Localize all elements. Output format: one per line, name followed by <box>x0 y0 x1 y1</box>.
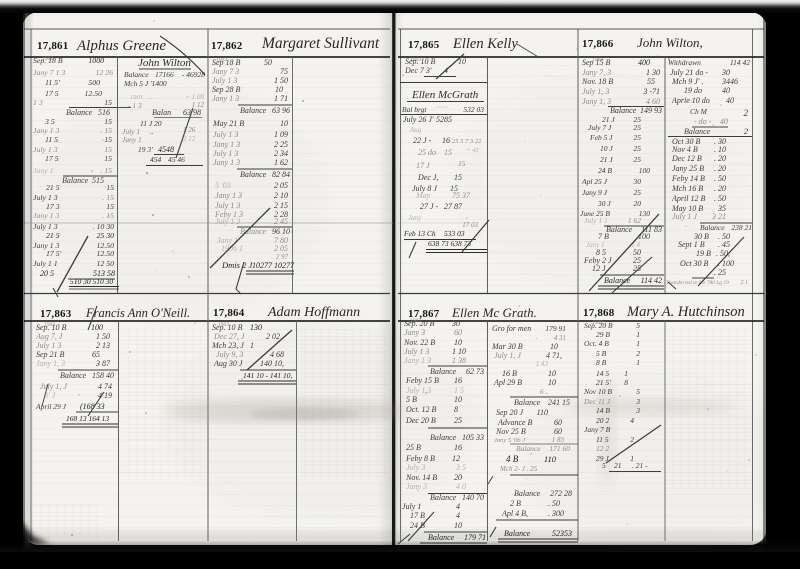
svg-text:Francis Ann O'Neill.: Francis Ann O'Neill. <box>85 306 190 320</box>
svg-text:Dec 12 B: Dec 12 B <box>671 154 702 163</box>
svg-text:3: 3 <box>635 397 640 406</box>
svg-text:12 J: 12 J <box>592 264 606 273</box>
svg-text:Balance: Balance <box>124 70 149 79</box>
svg-text:3446: 3446 <box>721 77 738 86</box>
svg-text:Balance: Balance <box>240 170 267 179</box>
svg-text:. 15: . 15 <box>100 166 112 175</box>
svg-text:20 5: 20 5 <box>40 269 54 278</box>
svg-text:17 5': 17 5' <box>46 249 62 258</box>
svg-text:110: 110 <box>544 454 557 464</box>
svg-text:17 5: 17 5 <box>45 89 59 98</box>
svg-text:25: 25 <box>634 155 642 164</box>
svg-text:. 20: . 20 <box>714 184 726 193</box>
svg-text:638 73 638 73: 638 73 638 73 <box>428 239 471 248</box>
svg-text:25: 25 <box>634 123 642 132</box>
svg-text:July 1 3: July 1 3 <box>213 130 238 139</box>
svg-text:Jany 1: Jany 1 <box>122 135 142 144</box>
svg-text:171 60: 171 60 <box>549 444 570 453</box>
svg-text:4 74: 4 74 <box>98 382 112 391</box>
svg-text:15: 15 <box>104 145 112 154</box>
svg-text:4 60: 4 60 <box>646 97 660 106</box>
svg-text:17,865: 17,865 <box>408 39 440 51</box>
svg-text:141 10 - 141 10,: 141 10 - 141 10, <box>243 371 292 380</box>
svg-text:10: 10 <box>548 378 556 387</box>
svg-text:Feb 13 Ch: Feb 13 Ch <box>403 229 436 238</box>
svg-text:2 02: 2 02 <box>266 332 280 341</box>
svg-text:Advance B: Advance B <box>497 418 533 427</box>
svg-text:7 B: 7 B <box>598 232 609 241</box>
svg-text:8: 8 <box>454 405 458 414</box>
svg-text:Balance: Balance <box>504 529 531 538</box>
svg-text:Jany 1 3: Jany 1 3 <box>404 356 431 365</box>
svg-text:Dec 27, J: Dec 27, J <box>213 332 245 341</box>
svg-text:1: 1 <box>636 358 640 367</box>
svg-text:17,862: 17,862 <box>211 40 243 52</box>
svg-text:Sep. 10 B: Sep. 10 B <box>36 323 67 332</box>
svg-text:114 42: 114 42 <box>730 58 750 67</box>
svg-text:1: 1 <box>636 330 640 339</box>
svg-text:30: 30 <box>451 319 460 328</box>
svg-text:20: 20 <box>454 473 462 482</box>
svg-text:40: 40 <box>726 96 734 105</box>
svg-text:. 300: . 300 <box>548 509 564 518</box>
svg-text:4 0: 4 0 <box>456 482 466 491</box>
svg-text:Jany 7 B: Jany 7 B <box>584 425 611 434</box>
svg-text:Dec 20 B: Dec 20 B <box>405 416 436 425</box>
svg-text:Jany 9 J: Jany 9 J <box>582 188 608 197</box>
svg-text:10: 10 <box>550 342 558 351</box>
svg-text:510 30 510 30: 510 30 510 30 <box>70 277 113 286</box>
svg-text:17,866: 17,866 <box>582 38 614 50</box>
svg-text:Dec 7 3': Dec 7 3' <box>404 66 432 75</box>
svg-text:Jany 1 3: Jany 1 3 <box>215 191 242 200</box>
svg-text:July 1 3: July 1 3 <box>36 341 61 350</box>
svg-text:July 7 J: July 7 J <box>588 123 612 132</box>
svg-text:30 J: 30 J <box>597 199 611 208</box>
svg-text:2 05: 2 05 <box>274 244 288 253</box>
svg-text:Jany 3: Jany 3 <box>404 328 425 337</box>
svg-text:130: 130 <box>250 323 262 332</box>
svg-text:July 1 3: July 1 3 <box>406 386 431 395</box>
svg-text:2 05: 2 05 <box>274 181 288 190</box>
svg-text:July 1, J: July 1, J <box>494 351 521 360</box>
svg-text:17 5: 17 5 <box>45 154 59 163</box>
svg-text:April 29 J: April 29 J <box>35 402 67 411</box>
svg-text:Feb 5 J: Feb 5 J <box>589 133 613 142</box>
svg-text:Ellen Kelly: Ellen Kelly <box>452 36 518 52</box>
svg-text:Sep. 10 B: Sep. 10 B <box>405 57 436 66</box>
svg-text:25 B: 25 B <box>406 443 421 452</box>
svg-text:Aprie 10 do: Aprie 10 do <box>671 96 710 105</box>
svg-text:533 03: 533 03 <box>444 229 465 238</box>
svg-text:4548: 4548 <box>158 145 174 154</box>
svg-text:.: . <box>536 333 538 341</box>
svg-text:16: 16 <box>442 136 450 145</box>
svg-text:John Wilton,: John Wilton, <box>637 35 703 50</box>
svg-text:Dec J,: Dec J, <box>417 173 438 182</box>
svg-text:500: 500 <box>88 78 100 87</box>
svg-text:5: 5 <box>636 321 640 330</box>
svg-text:Jany 5 '06 J: Jany 5 '06 J <box>494 437 526 444</box>
svg-text:25 do: 25 do <box>418 148 436 157</box>
svg-text:5285: 5285 <box>436 115 452 124</box>
svg-text:Nov. 14 B: Nov. 14 B <box>405 473 437 482</box>
svg-text:Jany 1 3: Jany 1 3 <box>33 211 60 220</box>
svg-text:Aug 7, J: Aug 7, J <box>35 332 63 341</box>
svg-text:5: 5 <box>602 461 606 470</box>
svg-text:May: May <box>415 191 431 200</box>
svg-text:Oct. 4 B: Oct. 4 B <box>584 339 609 348</box>
svg-text:3 5: 3 5 <box>455 463 466 472</box>
svg-text:Nov 25 B: Nov 25 B <box>495 427 526 436</box>
svg-text:Sep 18 B: Sep 18 B <box>212 58 241 67</box>
svg-text:Nov 4 B: Nov 4 B <box>671 145 698 154</box>
svg-text:24 B: 24 B <box>410 521 425 530</box>
svg-text:110: 110 <box>537 408 548 417</box>
svg-text:1 62: 1 62 <box>628 216 641 225</box>
svg-text:1 50: 1 50 <box>274 76 288 85</box>
svg-text:Dec 11 J: Dec 11 J <box>583 397 611 406</box>
svg-text:Sep. 20 B: Sep. 20 B <box>584 321 613 330</box>
svg-text:16: 16 <box>454 443 462 452</box>
svg-text:Oct. 12 B: Oct. 12 B <box>406 405 437 414</box>
svg-text:25: 25 <box>634 144 642 153</box>
svg-text:2: 2 <box>636 349 640 358</box>
svg-text:1: 1 <box>624 369 628 378</box>
svg-text:2 97: 2 97 <box>276 253 289 261</box>
svg-text:5: 5 <box>636 387 640 396</box>
svg-text:4: 4 <box>456 502 460 511</box>
svg-text:10 J: 10 J <box>600 144 613 153</box>
svg-text:Dmis 2 J: Dmis 2 J <box>221 260 253 270</box>
svg-text:8: 8 <box>624 378 628 387</box>
svg-text:25: 25 <box>454 416 462 425</box>
svg-text:21 J: 21 J <box>600 155 613 164</box>
svg-text:1: 1 <box>636 339 640 348</box>
svg-text:4 71,: 4 71, <box>546 351 562 360</box>
svg-text:60: 60 <box>554 418 562 427</box>
svg-text:- 1 3: - 1 3 <box>128 101 142 110</box>
svg-text:Balance: Balance <box>66 108 93 117</box>
svg-text:Balance: Balance <box>240 106 267 115</box>
svg-text:4 68: 4 68 <box>270 350 284 359</box>
svg-text:82 84: 82 84 <box>272 170 290 179</box>
svg-text:5 B: 5 B <box>596 349 607 358</box>
svg-text:4: 4 <box>630 416 634 425</box>
svg-text:17 J: 17 J <box>416 161 430 170</box>
svg-text:Sep 20 J: Sep 20 J <box>496 408 524 417</box>
svg-text:11 5': 11 5' <box>45 78 60 87</box>
svg-text:July 1 J: July 1 J <box>672 212 697 221</box>
svg-text:Jany 1 3: Jany 1 3 <box>213 158 240 167</box>
svg-text:Balance: Balance <box>700 223 725 232</box>
svg-text:3 87: 3 87 <box>95 359 111 368</box>
svg-text:21 5: 21 5 <box>46 231 60 240</box>
svg-text:2 25: 2 25 <box>274 140 288 149</box>
svg-text:July 1 3: July 1 3 <box>212 76 237 85</box>
svg-text:2 B: 2 B <box>510 499 521 508</box>
svg-text:1 10: 1 10 <box>452 347 466 356</box>
svg-text:1: 1 <box>250 341 254 350</box>
svg-text:. 21 -: . 21 - <box>632 461 648 470</box>
svg-text:15: 15 <box>106 183 114 192</box>
svg-text:21 5': 21 5' <box>596 378 611 387</box>
svg-text:12 50: 12 50 <box>96 259 114 268</box>
svg-text:Adam Hoffmann: Adam Hoffmann <box>267 305 360 320</box>
svg-text:July 21 do -: July 21 do - <box>670 68 708 77</box>
svg-text:Feby 8 B: Feby 8 B <box>405 454 435 463</box>
svg-text:July 1 3: July 1 3 <box>215 217 240 226</box>
svg-text:10: 10 <box>275 85 283 94</box>
svg-text:10: 10 <box>454 395 462 404</box>
svg-text:Jany 3: Jany 3 <box>406 482 427 491</box>
svg-text:22 J -: 22 J - <box>413 136 432 145</box>
svg-text:Sep 21 B: Sep 21 B <box>36 350 65 359</box>
svg-text:25 5 7 3 22: 25 5 7 3 22 <box>452 138 482 145</box>
svg-text:8 B: 8 B <box>596 358 607 367</box>
svg-text:Jany: Jany <box>408 214 422 222</box>
svg-text:July 1 3: July 1 3 <box>33 193 58 202</box>
svg-text:3 21: 3 21 <box>711 212 726 221</box>
svg-text:100: 100 <box>639 166 651 175</box>
svg-text:Transferred to No 786 Lg 19: Transferred to No 786 Lg 19 <box>666 279 729 286</box>
svg-text:..: .. <box>148 93 152 101</box>
svg-text:Ellen McGrath: Ellen McGrath <box>411 89 479 101</box>
svg-text:24 B: 24 B <box>598 166 612 175</box>
svg-text:Balance: Balance <box>514 489 541 498</box>
svg-text:+ 1 08: + 1 08 <box>185 93 204 101</box>
svg-text:532 03: 532 03 <box>463 105 484 114</box>
svg-text:Mch 5 J '1400: Mch 5 J '1400 <box>123 79 167 88</box>
svg-text:2 45: 2 45 <box>274 217 288 226</box>
svg-text:168 13 164 13: 168 13 164 13 <box>66 414 109 423</box>
svg-text:400: 400 <box>638 58 650 67</box>
svg-text:July 1: July 1 <box>402 502 421 511</box>
svg-text:1 43: 1 43 <box>536 360 549 368</box>
svg-text:July 9, 3: July 9, 3 <box>216 350 243 359</box>
svg-text:Nov. 18 B: Nov. 18 B <box>581 77 613 86</box>
svg-text:140 10,: 140 10, <box>260 359 284 368</box>
svg-text:. 50: . 50 <box>714 194 726 203</box>
svg-text:Ch M: Ch M <box>690 107 708 116</box>
svg-text:10277 10277: 10277 10277 <box>252 261 295 270</box>
svg-text:- do -: - do - <box>694 117 712 126</box>
svg-text:1000: 1000 <box>88 56 104 65</box>
svg-text:241 15: 241 15 <box>548 398 570 407</box>
svg-text:July 26 J': July 26 J' <box>403 115 434 124</box>
svg-text:17,864: 17,864 <box>213 307 245 319</box>
svg-text:Balance: Balance <box>514 398 541 407</box>
svg-text:2 12: 2 12 <box>183 135 196 143</box>
svg-text:15: 15 <box>106 202 114 211</box>
svg-text:Jany 25 B: Jany 25 B <box>672 164 704 173</box>
svg-text:July 1 3: July 1 3 <box>215 201 240 210</box>
svg-text:July 1, J: July 1, J <box>40 382 67 391</box>
svg-text:15: 15 <box>104 117 112 126</box>
svg-text:Feby 14 B: Feby 14 B <box>671 174 705 183</box>
svg-text:27 87: 27 87 <box>444 202 463 211</box>
svg-text:2 1: 2 1 <box>741 280 749 286</box>
svg-text:158 40: 158 40 <box>92 371 114 380</box>
svg-text:. 15: . 15 <box>102 211 114 220</box>
svg-text:55: 55 <box>647 77 655 86</box>
svg-text:April 12 B: April 12 B <box>671 194 705 203</box>
svg-text:19 B: 19 B <box>696 249 711 258</box>
svg-text:1 09: 1 09 <box>274 130 288 139</box>
svg-text:25: 25 <box>634 188 642 197</box>
svg-text:30: 30 <box>721 68 730 77</box>
svg-text:140 70: 140 70 <box>462 493 484 502</box>
svg-text:100: 100 <box>638 232 650 241</box>
svg-text:Sep 28 B: Sep 28 B <box>212 85 241 94</box>
svg-text:3 -71: 3 -71 <box>642 87 660 96</box>
svg-text:. 25: . 25 <box>714 268 726 277</box>
svg-text:3 5: 3 5 <box>44 117 55 126</box>
svg-text:Mch 9 J' .: Mch 9 J' . <box>671 77 703 86</box>
svg-text:149 93: 149 93 <box>640 106 662 115</box>
svg-text:July 1 3: July 1 3 <box>213 149 238 158</box>
svg-text:50: 50 <box>264 58 272 67</box>
svg-text:60: 60 <box>454 328 462 337</box>
svg-text:114 42: 114 42 <box>641 276 662 285</box>
svg-text:Mar 30 B: Mar 30 B <box>491 342 523 351</box>
svg-text:10: 10 <box>454 338 462 347</box>
svg-text:+ 43: + 43 <box>466 147 479 154</box>
svg-text:Balance: Balance <box>430 433 457 442</box>
svg-text:Mch 23, J: Mch 23, J <box>211 341 244 350</box>
svg-text:12.50: 12.50 <box>96 249 114 258</box>
svg-text:15: 15 <box>458 159 466 168</box>
svg-text:272 28: 272 28 <box>550 489 572 498</box>
svg-text:Mary A. Hutchinson: Mary A. Hutchinson <box>626 304 745 320</box>
svg-text:Sep. 20 B: Sep. 20 B <box>404 319 435 328</box>
svg-text:1 71: 1 71 <box>274 94 288 103</box>
svg-text:Sep. 18 B: Sep. 18 B <box>33 56 63 65</box>
svg-text:1901: 1901 <box>130 94 143 101</box>
svg-text:63 96: 63 96 <box>272 106 290 115</box>
svg-text:1 5: 1 5 <box>454 386 464 395</box>
svg-text:Ellen Mc Grath.: Ellen Mc Grath. <box>451 305 537 320</box>
svg-text:14 B: 14 B <box>596 406 610 415</box>
svg-text:Feby 15 B: Feby 15 B <box>405 376 439 385</box>
svg-text:52353: 52353 <box>552 529 572 538</box>
svg-text:Aug: Aug <box>409 126 422 134</box>
svg-text:1 50: 1 50 <box>96 332 110 341</box>
svg-text:454: 454 <box>150 155 162 164</box>
svg-text:Jany 7 3: Jany 7 3 <box>212 67 239 76</box>
svg-text:105 33: 105 33 <box>462 433 484 442</box>
svg-text:. 50: . 50 <box>714 174 726 183</box>
svg-text:Jany 1 3: Jany 1 3 <box>213 140 240 149</box>
svg-text:Gro for men: Gro for men <box>492 324 531 333</box>
svg-text:17 3: 17 3 <box>46 202 60 211</box>
svg-text:96 10: 96 10 <box>272 227 290 236</box>
svg-text:Apl 29 B: Apl 29 B <box>493 378 522 387</box>
svg-text:Balan: Balan <box>152 108 171 117</box>
svg-text:15: 15 <box>104 154 112 163</box>
svg-text:21: 21 <box>614 461 622 470</box>
svg-text:17,861: 17,861 <box>37 40 68 52</box>
svg-text:4 31: 4 31 <box>554 334 566 342</box>
svg-text:Balance: Balance <box>610 106 637 115</box>
svg-text:~~~: ~~~ <box>436 104 448 112</box>
svg-text:15: 15 <box>104 98 112 107</box>
svg-text:40: 40 <box>722 86 730 95</box>
svg-text:21 5: 21 5 <box>46 183 60 192</box>
svg-text:25 30: 25 30 <box>96 231 114 240</box>
svg-text:2: 2 <box>630 435 634 444</box>
svg-text:. 10: . 10 <box>714 145 726 154</box>
svg-text:Jany 1 3: Jany 1 3 <box>33 126 60 135</box>
svg-text:May 21 B: May 21 B <box>212 119 244 128</box>
svg-text:Jany 7, 3: Jany 7, 3 <box>582 68 611 77</box>
svg-text:2 15: 2 15 <box>274 201 288 210</box>
svg-text:Nov 10 B: Nov 10 B <box>583 387 612 396</box>
svg-text:10: 10 <box>280 119 288 128</box>
svg-text:. 50: . 50 <box>548 499 560 508</box>
svg-text:Balance: Balance <box>516 444 541 453</box>
svg-text:14 5: 14 5 <box>596 369 609 378</box>
svg-text:1 62: 1 62 <box>274 158 288 167</box>
svg-text:Withdrawn: Withdrawn <box>668 58 701 67</box>
svg-text:5 '03: 5 '03 <box>215 181 231 190</box>
svg-text:Apl 25 J: Apl 25 J <box>581 177 608 186</box>
svg-text:15: 15 <box>104 135 112 144</box>
svg-text:10: 10 <box>548 369 556 378</box>
svg-text:515: 515 <box>92 176 104 185</box>
svg-text:July 1 1: July 1 1 <box>33 259 58 268</box>
svg-text:12.50: 12.50 <box>84 89 102 98</box>
svg-text:2 13: 2 13 <box>96 341 110 350</box>
svg-text:July 3: July 3 <box>406 463 425 472</box>
svg-text:4: 4 <box>456 511 460 520</box>
svg-text:July 1 3: July 1 3 <box>404 347 429 356</box>
svg-text:16: 16 <box>454 376 462 385</box>
svg-text:60: 60 <box>554 427 562 436</box>
svg-text:100: 100 <box>91 323 103 332</box>
svg-text:27 J -: 27 J - <box>420 202 439 211</box>
svg-text:July 1, 3: July 1, 3 <box>582 87 609 96</box>
svg-text:12 2: 12 2 <box>596 444 609 453</box>
svg-text:3: 3 <box>635 406 640 415</box>
svg-text:Jany 7 1 3: Jany 7 1 3 <box>33 68 65 77</box>
svg-text:516: 516 <box>98 108 110 117</box>
svg-text:. 10 30: . 10 30 <box>93 222 115 231</box>
svg-text:Sept 1 B: Sept 1 B <box>678 240 705 249</box>
svg-text:Sep. 10 B: Sep. 10 B <box>212 323 243 332</box>
svg-text:Balance: Balance <box>60 371 87 380</box>
svg-text:. 15: . 15 <box>100 126 112 135</box>
svg-text:17166: 17166 <box>155 70 174 79</box>
svg-text:Balance: Balance <box>684 127 711 136</box>
svg-text:. 20: . 20 <box>714 164 726 173</box>
svg-text:. 100: . 100 <box>718 259 734 268</box>
svg-text:4 B: 4 B <box>506 454 519 464</box>
svg-text:Alphus Greene: Alphus Greene <box>76 38 166 54</box>
svg-text:Jany 1 3: Jany 1 3 <box>212 94 239 103</box>
svg-text:Jany 1, 3: Jany 1, 3 <box>582 97 611 106</box>
svg-text:Balance: Balance <box>62 176 89 185</box>
svg-text:Bal brgt: Bal brgt <box>402 105 427 114</box>
svg-text:1 30: 1 30 <box>646 68 660 77</box>
svg-text:25: 25 <box>634 133 642 142</box>
svg-text:11 5: 11 5 <box>45 135 58 144</box>
svg-text:10: 10 <box>454 521 462 530</box>
svg-text:Balance: Balance <box>430 367 457 376</box>
svg-text:Margaret Sullivant: Margaret Sullivant <box>261 35 380 52</box>
svg-text:179 91: 179 91 <box>545 324 566 333</box>
svg-text:5 B: 5 B <box>406 395 417 404</box>
